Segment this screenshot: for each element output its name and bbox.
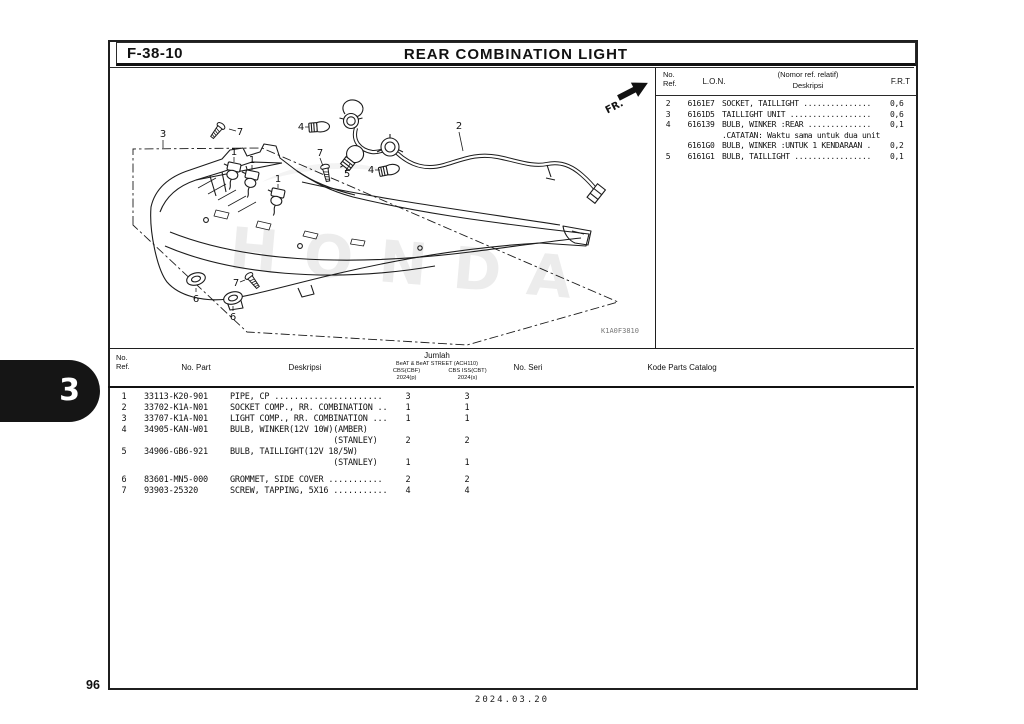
callout-label: 5 <box>344 169 350 180</box>
col-kode-parts-catalog: Kode Parts Catalog <box>602 363 762 372</box>
cell-ref: 1 <box>112 392 136 402</box>
cell-ref: 3 <box>656 110 680 121</box>
catalog-page: F-38-10 REAR COMBINATION LIGHT <box>0 0 1024 724</box>
cell-qty-1: 4 <box>398 486 418 496</box>
cell-desc: BULB, WINKER(12V 10W)(AMBER) <box>230 425 368 435</box>
grommet-icon <box>185 271 206 288</box>
table-row: 6161G0BULB, WINKER :UNTUK 1 KENDARAAN .0… <box>656 141 916 152</box>
table-divider <box>108 348 914 349</box>
cell-ref: 4 <box>112 425 136 435</box>
cell-lon: 616139 <box>680 120 722 131</box>
cell-qty-2: 3 <box>457 392 477 402</box>
table-row: 36161D5TAILLIGHT UNIT ..................… <box>656 110 916 121</box>
callout-label: 3 <box>160 129 166 140</box>
bulb-socket-icon <box>263 187 285 217</box>
cell-part-number: 33702-K1A-N01 <box>144 403 208 413</box>
cell-qty-2: 1 <box>457 414 477 424</box>
callout-label: 1 <box>231 147 237 158</box>
cell-frt: 0,6 <box>890 110 916 121</box>
honda-watermark: HONDA <box>227 163 601 314</box>
cell-frt: 0,1 <box>890 120 916 131</box>
cell-desc: GROMMET, SIDE COVER ........... <box>230 475 382 485</box>
cell-desc: BULB, TAILLIGHT ................. <box>722 152 890 163</box>
wire-harness-drawing <box>340 100 606 203</box>
cell-desc: BULB, TAILLIGHT(12V 18/5W) <box>230 447 358 457</box>
cell-lon: 6161D5 <box>680 110 722 121</box>
cell-part-number: 33113-K20-901 <box>144 392 208 402</box>
cell-qty-2: 1 <box>457 458 477 468</box>
winker-bulb-icon <box>378 163 400 177</box>
callout-label: 1 <box>249 155 255 166</box>
cell-desc: TAILLIGHT UNIT .................. <box>722 110 890 121</box>
callout-label: 7 <box>317 148 323 159</box>
col-deskripsi: (Nomor ref. relatif) Deskripsi <box>740 70 876 92</box>
col-deskripsi: Deskripsi <box>255 363 355 372</box>
bulb-socket-icon <box>237 169 259 199</box>
cell-desc: SCREW, TAPPING, 5X16 ........... <box>230 486 387 496</box>
table-row: 4616139BULB, WINKER :REAR ..............… <box>656 120 916 131</box>
cell-qty-2: 4 <box>457 486 477 496</box>
cell-qty-1: 1 <box>398 403 418 413</box>
table-row: 26161E7SOCKET, TAILLIGHT ...............… <box>656 99 916 110</box>
callout-label: 1 <box>275 174 281 185</box>
table-row: 333707-K1A-N01LIGHT COMP., RR. COMBINATI… <box>108 414 914 425</box>
cell-part-number: 34906-GB6-921 <box>144 447 208 457</box>
section-tab: 3 <box>0 360 100 422</box>
col-jumlah: Jumlah BeAT & BeAT STREET (ACH110) CBS(C… <box>376 351 498 381</box>
screw-icon <box>209 121 227 140</box>
cell-frt: 0,6 <box>890 99 916 110</box>
col-no-ref: No. Ref. <box>116 354 130 371</box>
connector-drawing <box>587 184 605 204</box>
col-deskripsi-note: (Nomor ref. relatif) <box>740 70 876 81</box>
callout-label: 7 <box>233 278 239 289</box>
ref-table: No. Ref. L.O.N. (Nomor ref. relatif) Des… <box>655 68 916 348</box>
cell-desc: SOCKET, TAILLIGHT ............... <box>722 99 890 110</box>
cell-qty-1: 1 <box>398 458 418 468</box>
table-row: .CATATAN: Waktu sama untuk dua unit <box>656 131 916 142</box>
jumlah-model: BeAT & BeAT STREET (ACH110) <box>376 361 498 367</box>
header-strip: F-38-10 REAR COMBINATION LIGHT <box>116 42 916 66</box>
cell-desc: .CATATAN: Waktu sama untuk dua unit <box>722 131 890 142</box>
table-row: 133113-K20-901PIPE, CP .................… <box>108 392 914 403</box>
cell-ref <box>656 141 680 152</box>
table-row: (STANLEY)11 <box>108 458 914 469</box>
cell-lon: 6161E7 <box>680 99 722 110</box>
jumlah-year-right: 2024(s) <box>437 375 498 381</box>
page-title: REAR COMBINATION LIGHT <box>117 46 915 63</box>
table-row: 793903-25320SCREW, TAPPING, 5X16 .......… <box>108 486 914 497</box>
cell-qty-1: 2 <box>398 436 418 446</box>
col-deskripsi-label: Deskripsi <box>740 81 876 92</box>
callout-label: 7 <box>237 127 243 138</box>
fr-label: FR. <box>604 98 625 116</box>
table-row: 56161G1BULB, TAILLIGHT .................… <box>656 152 916 163</box>
cell-qty-1: 1 <box>398 414 418 424</box>
table-row: 534906-GB6-921BULB, TAILLIGHT(12V 18/5W) <box>108 447 914 458</box>
cell-part-number: 34905-KAN-W01 <box>144 425 208 435</box>
cell-qty-1: 3 <box>398 392 418 402</box>
cell-frt: 0,2 <box>890 141 916 152</box>
cell-lon <box>680 131 722 142</box>
callout-label: 6 <box>193 294 199 305</box>
table-row: (STANLEY)22 <box>108 436 914 447</box>
jumlah-variant-left: CBS(CBF) <box>376 368 437 374</box>
callout-label: 2 <box>456 121 462 132</box>
cell-ref: 2 <box>656 99 680 110</box>
table-row: 683601-MN5-000GROMMET, SIDE COVER ......… <box>108 475 914 486</box>
cell-qty-1: 2 <box>398 475 418 485</box>
cell-ref: 7 <box>112 486 136 496</box>
cell-desc: (STANLEY) <box>230 458 378 468</box>
cell-qty-2: 1 <box>457 403 477 413</box>
cell-qty-2: 2 <box>457 436 477 446</box>
ref-table-rows: 26161E7SOCKET, TAILLIGHT ...............… <box>656 99 916 162</box>
cell-ref: 5 <box>656 152 680 163</box>
cell-frt: 0,1 <box>890 152 916 163</box>
cell-desc: BULB, WINKER :REAR .............. <box>722 120 890 131</box>
fr-arrow-icon: FR. <box>600 76 654 117</box>
callout-label: 4 <box>368 165 374 176</box>
cell-desc: LIGHT COMP., RR. COMBINATION ... <box>230 414 387 424</box>
cell-ref: 3 <box>112 414 136 424</box>
cell-ref <box>656 131 680 142</box>
cell-desc: SOCKET COMP., RR. COMBINATION .. <box>230 403 387 413</box>
print-date: 2024.03.20 <box>450 695 574 705</box>
winker-bulb-icon <box>309 121 330 133</box>
cell-qty-2: 2 <box>457 475 477 485</box>
cell-ref: 2 <box>112 403 136 413</box>
cell-part-number: 93903-25320 <box>144 486 198 496</box>
col-no-part: No. Part <box>156 363 236 372</box>
grommet-icon <box>222 290 243 307</box>
cell-part-number: 83601-MN5-000 <box>144 475 208 485</box>
col-lon: L.O.N. <box>692 77 736 86</box>
cell-lon: 6161G0 <box>680 141 722 152</box>
cell-ref: 4 <box>656 120 680 131</box>
col-no-seri: No. Seri <box>488 363 568 372</box>
page-number: 96 <box>86 678 100 692</box>
cell-lon: 6161G1 <box>680 152 722 163</box>
parts-table-rows: 133113-K20-901PIPE, CP .................… <box>108 392 914 497</box>
cell-ref: 6 <box>112 475 136 485</box>
diagram-code: K1A0F3810 <box>601 327 639 335</box>
cell-desc: PIPE, CP ...................... <box>230 392 382 402</box>
section-tab-number: 3 <box>59 373 80 408</box>
cell-part-number: 33707-K1A-N01 <box>144 414 208 424</box>
col-no-ref: No. Ref. <box>663 71 677 88</box>
jumlah-label: Jumlah <box>376 351 498 360</box>
table-row: 434905-KAN-W01BULB, WINKER(12V 10W)(AMBE… <box>108 425 914 436</box>
callout-label: 6 <box>230 312 236 323</box>
col-frt: F.R.T <box>891 77 910 86</box>
cell-frt <box>890 131 916 142</box>
cell-ref: 5 <box>112 447 136 457</box>
jumlah-year-left: 2024(p) <box>376 375 437 381</box>
callout-label: 4 <box>298 122 304 133</box>
cell-desc: (STANLEY) <box>230 436 378 446</box>
parts-table-header: No. Ref. No. Part Deskripsi Jumlah BeAT … <box>108 350 914 388</box>
ref-table-header: No. Ref. L.O.N. (Nomor ref. relatif) Des… <box>656 68 916 96</box>
cell-desc: BULB, WINKER :UNTUK 1 KENDARAAN . <box>722 141 890 152</box>
table-row: 233702-K1A-N01SOCKET COMP., RR. COMBINAT… <box>108 403 914 414</box>
